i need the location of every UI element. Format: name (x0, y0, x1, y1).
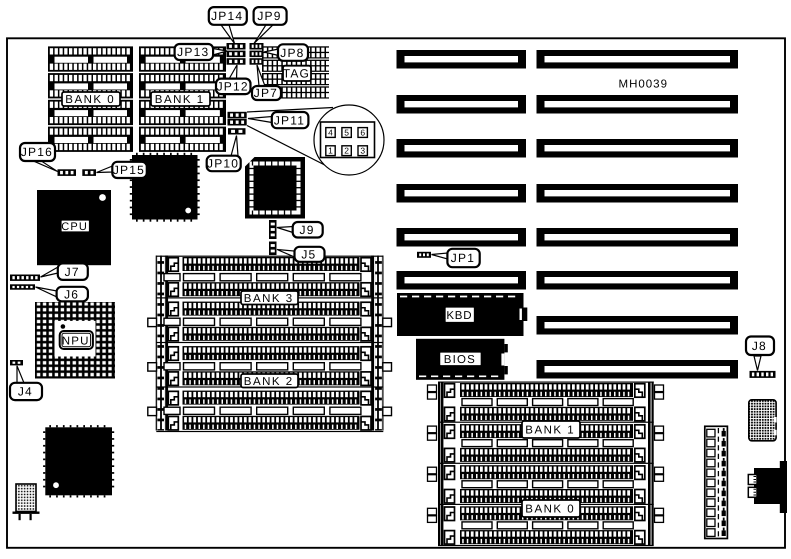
svg-text:JP7: JP7 (254, 86, 278, 100)
svg-text:JP1: JP1 (451, 251, 475, 265)
svg-text:J6: J6 (64, 287, 79, 301)
svg-text:NPU: NPU (62, 336, 90, 348)
svg-text:J8: J8 (752, 339, 767, 353)
svg-text:JP16: JP16 (21, 145, 53, 159)
svg-text:J9: J9 (300, 223, 315, 237)
svg-text:JP9: JP9 (257, 9, 281, 23)
svg-text:BANK 2: BANK 2 (244, 376, 294, 388)
svg-text:CPU: CPU (61, 221, 88, 233)
svg-text:J4: J4 (18, 385, 33, 399)
svg-text:BANK 1: BANK 1 (525, 425, 575, 437)
svg-text:JP11: JP11 (274, 113, 305, 127)
svg-text:J7: J7 (65, 265, 80, 279)
svg-text:JP14: JP14 (211, 9, 243, 23)
svg-text:BANK 0: BANK 0 (65, 94, 115, 106)
svg-text:BANK 0: BANK 0 (525, 504, 575, 516)
svg-text:3: 3 (360, 146, 365, 156)
svg-text:6: 6 (360, 128, 365, 138)
svg-text:4: 4 (328, 128, 333, 138)
svg-text:JP13: JP13 (177, 45, 209, 59)
svg-text:JP12: JP12 (217, 80, 249, 94)
svg-text:JP8: JP8 (280, 46, 304, 60)
svg-text:TAG: TAG (283, 67, 310, 81)
svg-text:BIOS: BIOS (444, 354, 476, 366)
svg-text:BANK 3: BANK 3 (244, 293, 294, 305)
svg-text:2: 2 (344, 146, 349, 156)
svg-text:JP15: JP15 (113, 163, 145, 177)
svg-text:J5: J5 (301, 248, 316, 262)
svg-text:MH0039: MH0039 (619, 79, 668, 91)
svg-text:1: 1 (328, 146, 333, 156)
svg-text:JP10: JP10 (207, 157, 239, 171)
svg-text:BANK 1: BANK 1 (155, 94, 205, 106)
svg-text:KBD: KBD (446, 310, 472, 322)
svg-text:5: 5 (344, 128, 349, 138)
